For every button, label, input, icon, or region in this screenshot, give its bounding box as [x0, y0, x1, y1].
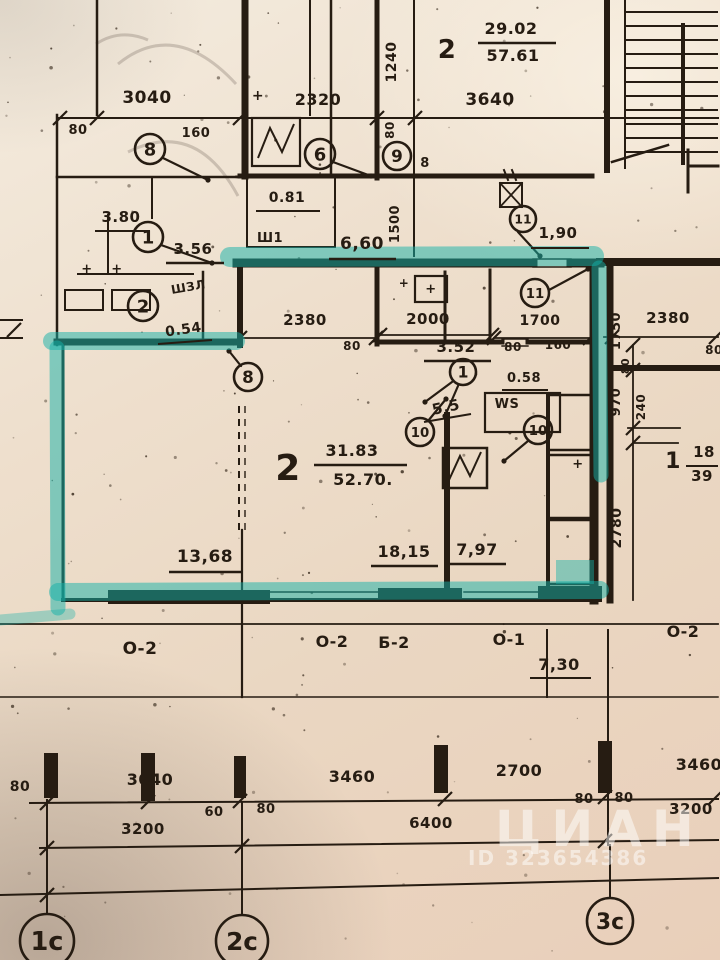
paper-speck: [252, 791, 255, 794]
paper-speck: [406, 69, 408, 71]
paper-speck: [120, 499, 122, 501]
paper-speck: [278, 22, 279, 23]
paper-speck: [67, 707, 70, 710]
paper-speck: [397, 873, 399, 875]
leader-arrowhead: [585, 266, 590, 271]
position-marker-number: 2с: [226, 927, 258, 956]
paper-speck: [73, 25, 75, 27]
paper-speck: [566, 535, 569, 538]
plan-label: 80: [68, 123, 87, 138]
plan-label: 2700: [496, 761, 543, 780]
plan-label: 1750: [609, 312, 624, 350]
plan-label: 3460: [329, 767, 376, 786]
paper-speck: [551, 950, 553, 952]
paper-speck: [227, 121, 230, 124]
paper-speck: [169, 706, 170, 707]
paper-speck: [536, 7, 538, 9]
plan-label: 80: [343, 339, 361, 353]
paper-speck: [302, 574, 304, 576]
plan-label: 80: [705, 343, 720, 357]
paper-speck: [577, 718, 578, 719]
plan-label: 29.02: [484, 19, 537, 38]
paper-speck: [251, 637, 253, 639]
paper-speck: [7, 101, 9, 103]
position-marker-number: 3с: [596, 910, 624, 935]
plan-label: 57.61: [486, 46, 539, 65]
plan-label: О-2: [667, 622, 700, 641]
paper-speck: [127, 184, 130, 187]
plan-label: 2780: [609, 508, 625, 549]
paper-speck: [393, 298, 395, 300]
paper-speck: [13, 437, 15, 439]
paper-speck: [62, 886, 64, 888]
plan-label: 18,15: [377, 542, 430, 561]
paper-speck: [288, 421, 290, 423]
staircase-layer: [625, 12, 718, 152]
paper-speck: [44, 399, 47, 402]
paper-speck: [483, 533, 486, 536]
watermark-id: ID 323654386: [468, 846, 648, 870]
plan-label: +: [425, 282, 436, 297]
highlight-stroke: [58, 590, 600, 592]
paper-speck: [294, 216, 296, 218]
paper-speck: [401, 470, 404, 473]
position-marker-number: 8: [144, 139, 157, 160]
paper-speck: [301, 684, 303, 686]
highlight-patch: [556, 560, 594, 584]
paper-speck: [17, 712, 19, 714]
plan-label: 6,60: [340, 234, 384, 254]
paper-speck: [319, 480, 323, 484]
paper-speck: [284, 532, 286, 534]
plan-label: Ш1: [257, 231, 283, 246]
position-marker-number: 1с: [30, 927, 63, 957]
paper-speck: [273, 380, 274, 381]
plan-label: 1700: [520, 313, 561, 329]
paper-speck: [641, 351, 644, 354]
plan-label: 3.80: [101, 208, 140, 226]
plan-label: 2: [438, 35, 457, 65]
paper-speck: [357, 399, 359, 401]
dim-tick: [7, 323, 21, 337]
paper-speck: [428, 457, 431, 460]
paper-speck: [153, 703, 157, 707]
paper-speck: [283, 714, 286, 717]
plan-label: 52.70.: [333, 470, 393, 489]
paper-speck: [695, 226, 697, 228]
paper-speck: [612, 667, 614, 669]
paper-speck: [588, 760, 591, 763]
plan-label: 80: [619, 358, 632, 374]
plan-label: 18: [693, 443, 715, 461]
position-marker-number: 1: [458, 364, 469, 382]
plan-label: +: [81, 262, 92, 277]
paper-speck: [661, 748, 663, 750]
paper-speck: [11, 705, 14, 708]
plan-label: ШЗЛ: [170, 277, 207, 297]
paper-speck: [174, 456, 177, 459]
paper-speck: [637, 220, 639, 222]
plan-label: 3460: [676, 755, 720, 774]
paper-speck: [230, 472, 232, 474]
paper-speck: [145, 455, 147, 457]
paper-speck: [53, 652, 56, 655]
paper-speck: [483, 287, 486, 290]
paper-speck: [308, 572, 310, 574]
paper-speck: [277, 578, 279, 580]
paper-speck: [344, 937, 346, 939]
plan-label: 1,90: [538, 224, 577, 242]
paper-speck: [414, 349, 418, 353]
paper-speck: [515, 540, 517, 542]
leader-arrowhead: [205, 177, 210, 182]
paper-speck: [343, 663, 346, 666]
paper-speck: [524, 69, 527, 72]
plan-label: 8: [420, 156, 430, 171]
paper-speck: [530, 95, 531, 96]
paper-speck: [229, 892, 232, 895]
plan-label: 60: [204, 805, 223, 820]
paper-speck: [437, 735, 440, 738]
paper-speck: [301, 637, 304, 640]
pencil-scribbles-layer: [96, 35, 238, 196]
plan-label: 2000: [406, 310, 450, 328]
plan-label: 7,30: [538, 655, 579, 674]
plan-label: О-2: [123, 639, 158, 659]
closet-zigzag-icon: [258, 124, 294, 158]
paper-speck: [14, 817, 16, 819]
plan-label: 160: [545, 338, 572, 352]
paper-speck: [95, 181, 98, 184]
paper-speck: [436, 8, 438, 10]
paper-speck: [340, 7, 341, 8]
paper-speck: [387, 791, 389, 793]
paper-speck: [267, 12, 269, 14]
window-sill-block: [434, 745, 448, 793]
position-marker-number: 2: [137, 296, 150, 317]
paper-speck: [515, 437, 518, 440]
paper-speck: [462, 454, 465, 457]
paper-speck: [197, 50, 199, 52]
paper-speck: [532, 412, 534, 414]
position-marker-number: 1: [142, 227, 155, 248]
marker-leader-line: [549, 269, 588, 290]
paper-speck: [372, 504, 373, 505]
paper-speck: [489, 241, 492, 244]
paper-speck: [602, 85, 604, 87]
paper-speck: [234, 392, 236, 394]
plan-label: 6400: [409, 814, 453, 832]
fixture-outline: [548, 455, 594, 518]
plan-label: 80: [383, 121, 397, 139]
paper-speck: [314, 77, 316, 79]
leader-arrowhead: [422, 399, 427, 404]
dimension-line: [612, 145, 668, 162]
plan-label: 160: [182, 126, 211, 141]
dim-tick: [438, 792, 452, 806]
plan-label: 1: [665, 449, 681, 474]
paper-speck: [70, 561, 72, 563]
paper-speck: [9, 57, 11, 59]
position-marker-number: 10: [529, 424, 548, 439]
leader-arrowhead: [368, 173, 373, 178]
plan-label: 31.83: [325, 441, 378, 460]
paper-speck: [41, 129, 44, 132]
paper-speck: [104, 474, 105, 475]
paper-speck: [301, 404, 302, 405]
plan-label: +: [572, 457, 583, 472]
paper-speck: [448, 127, 449, 128]
plan-label: О-1: [493, 630, 526, 649]
paper-speck: [162, 609, 165, 612]
plan-label: +: [252, 88, 264, 104]
paper-speck: [159, 643, 161, 645]
paper-speck: [303, 729, 305, 731]
paper-speck: [265, 95, 268, 98]
plan-label: 2: [275, 448, 301, 489]
paper-speck: [199, 44, 201, 46]
paper-speck: [88, 250, 90, 252]
floor-plan-photo: 29.0257.6123640304023201240801608080.81Ш…: [0, 0, 720, 960]
paper-speck: [215, 462, 217, 464]
paper-speck: [14, 667, 16, 669]
highlight-stroke: [599, 268, 601, 475]
plan-label: О-2: [316, 632, 349, 651]
position-marker-number: 9: [391, 146, 403, 166]
plan-label: 5,5: [430, 395, 461, 418]
paper-speck: [272, 707, 275, 710]
paper-speck: [50, 47, 52, 49]
paper-speck: [101, 617, 103, 619]
paper-speck: [335, 269, 336, 270]
pencil-mark: [96, 35, 148, 44]
paper-speck: [75, 413, 77, 415]
plan-label: 240: [634, 394, 648, 421]
paper-speck: [51, 632, 54, 635]
paper-speck: [75, 432, 77, 434]
plan-label: 0.58: [507, 371, 541, 386]
paper-speck: [49, 66, 53, 70]
paper-speck: [544, 495, 545, 496]
plan-label: Б-2: [378, 633, 409, 652]
paper-speck: [64, 916, 66, 918]
position-marker-number: 8: [242, 367, 254, 387]
paper-speck: [171, 12, 172, 13]
paper-speck: [41, 294, 42, 295]
plan-label: WS: [495, 397, 520, 412]
paper-speck: [71, 493, 74, 496]
window-sill-block: [234, 756, 246, 798]
plan-label: 3040: [122, 88, 171, 108]
paper-speck: [417, 99, 420, 102]
paper-speck: [651, 187, 653, 189]
fixture-outline: [548, 395, 594, 450]
plan-label: 1240: [384, 42, 400, 83]
plan-label: +: [111, 262, 122, 277]
plan-label: 1500: [388, 205, 403, 243]
plan-label: 3.56: [173, 240, 212, 258]
leader-arrowhead: [501, 458, 506, 463]
paper-speck: [184, 95, 185, 96]
paper-speck: [408, 412, 410, 414]
paper-speck: [514, 240, 515, 241]
position-marker-number: 6: [314, 144, 327, 165]
plan-label: 7,97: [456, 540, 497, 559]
paper-speck: [223, 390, 224, 391]
paper-speck: [302, 674, 304, 676]
plan-label: 80: [256, 802, 275, 817]
fixture-outline: [65, 290, 103, 310]
paper-speck: [367, 401, 370, 404]
paper-speck: [168, 799, 170, 801]
paper-speck: [217, 76, 220, 79]
paper-speck: [665, 926, 668, 929]
highlight-stroke: [230, 256, 594, 257]
paper-speck: [689, 654, 691, 656]
paper-speck: [219, 310, 220, 311]
plan-label: 3640: [465, 90, 514, 110]
marker-leader-line: [229, 351, 241, 366]
paper-speck: [5, 115, 7, 117]
paper-speck: [551, 300, 554, 303]
position-marker-number: 10: [411, 426, 430, 441]
plan-label: 2380: [646, 309, 690, 327]
plan-label: 3.52: [436, 338, 475, 356]
paper-speck: [524, 874, 527, 877]
position-marker-number: 11: [526, 287, 545, 302]
paper-speck: [149, 61, 151, 63]
paper-speck: [530, 738, 532, 740]
plan-label: 80: [504, 340, 522, 354]
paper-speck: [104, 283, 106, 285]
plan-label: 3200: [121, 820, 165, 838]
highlight-stroke: [0, 614, 70, 620]
paper-speck: [302, 507, 305, 510]
position-marker-number: 11: [514, 212, 531, 226]
plan-label: 3040: [127, 770, 174, 789]
paper-speck: [225, 469, 228, 472]
paper-speck: [115, 27, 117, 29]
plan-label: 39: [691, 467, 713, 485]
plan-label: 970: [609, 388, 624, 417]
paper-speck: [238, 538, 239, 539]
window-sill-block: [598, 741, 612, 793]
paper-speck: [454, 781, 455, 782]
paper-speck: [104, 901, 106, 903]
window-sill-block: [44, 753, 58, 798]
plan-label: 80: [10, 779, 30, 795]
plan-label: 2320: [295, 90, 342, 109]
plan-label: 0.81: [269, 190, 306, 206]
paper-speck: [28, 872, 31, 875]
paper-speck: [408, 529, 411, 532]
paper-speck: [68, 563, 70, 565]
highlight-stroke: [57, 348, 58, 608]
plan-label: 13,68: [177, 547, 233, 567]
paper-speck: [674, 230, 676, 232]
paper-speck: [650, 103, 653, 106]
plan-label: 2380: [283, 311, 327, 329]
paper-speck: [109, 484, 112, 487]
paper-speck: [375, 516, 376, 517]
paper-speck: [471, 922, 472, 923]
paper-speck: [432, 904, 434, 906]
marker-leader-line: [504, 441, 528, 461]
paper-speck: [296, 694, 299, 697]
paper-speck: [356, 373, 358, 375]
plan-label: +: [399, 276, 410, 290]
